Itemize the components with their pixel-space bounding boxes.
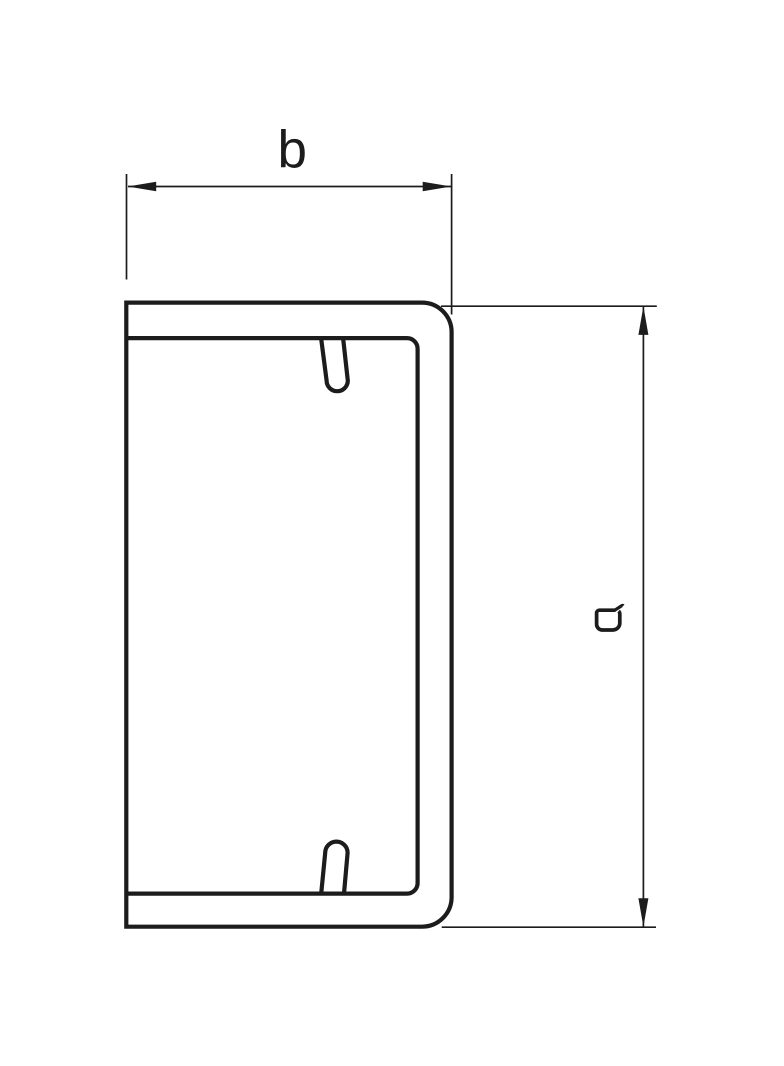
svg-text:b: b [278,121,307,180]
